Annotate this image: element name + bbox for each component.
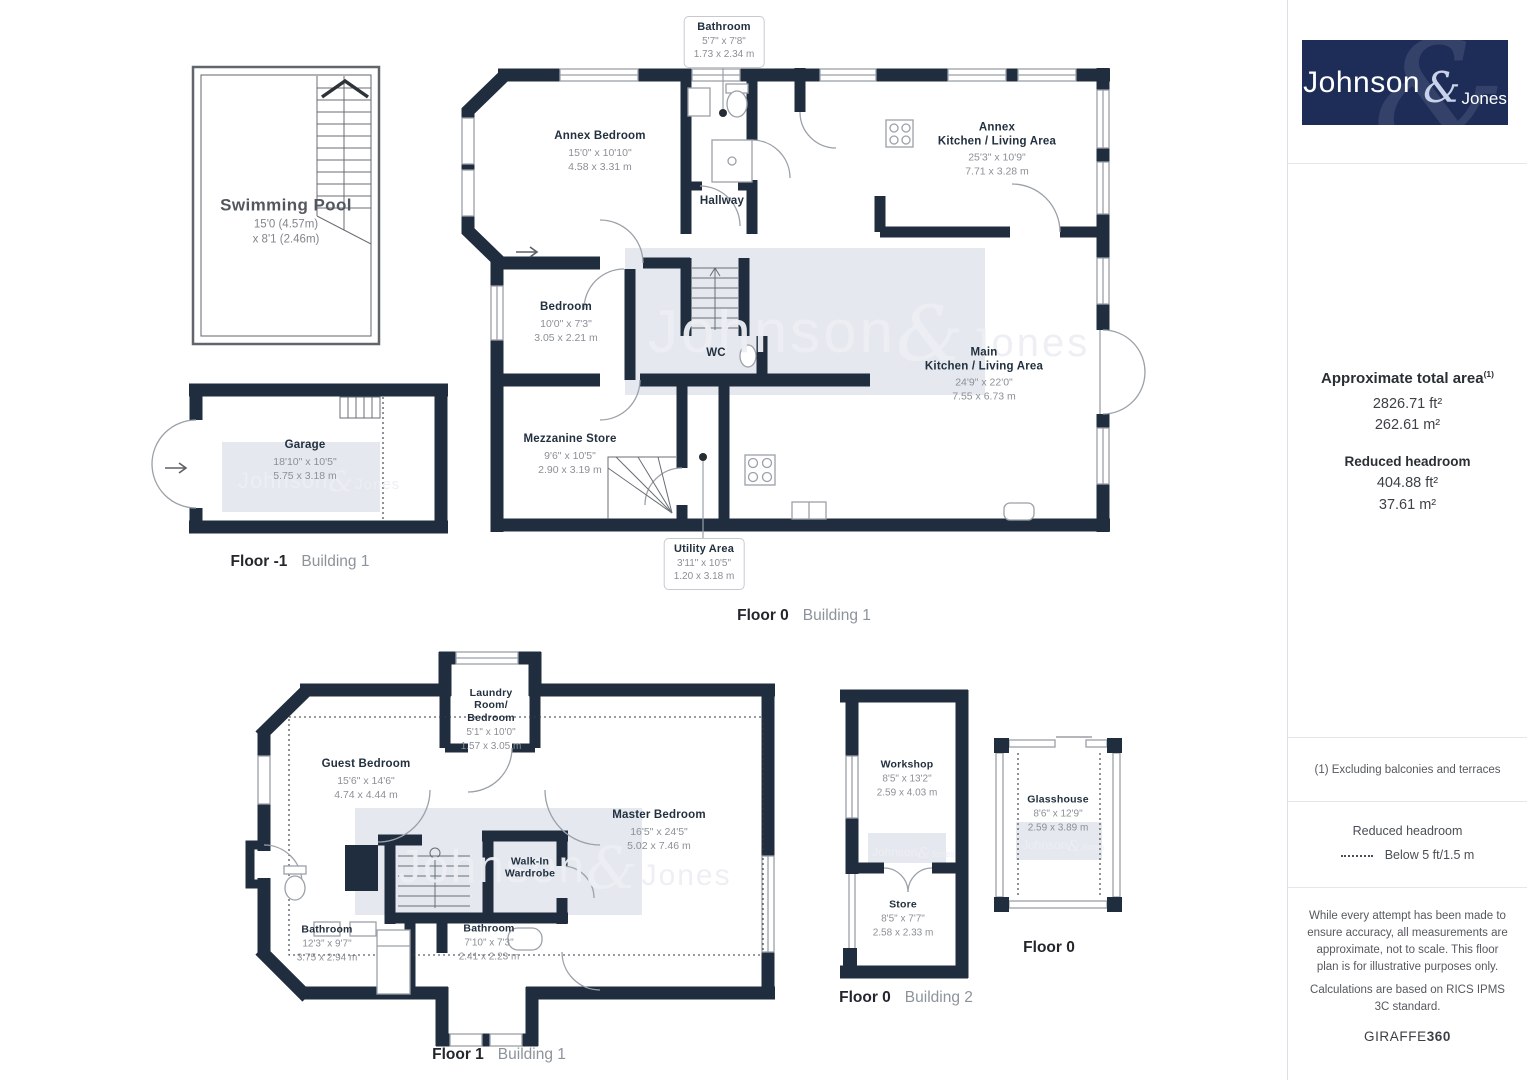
floor-label-floor0-glasshouse: Floor 0 xyxy=(1023,939,1089,957)
logo-primary-text: Johnson xyxy=(1303,66,1420,100)
room-dims: 7'10" x 7'3" 2.41 x 2.23 m xyxy=(459,937,520,964)
room-name: Annex Kitchen / Living Area xyxy=(938,121,1056,148)
room-label-workshop: Workshop 8'5" x 13'2" 2.59 x 4.03 m xyxy=(877,758,938,799)
room-label-bathroom-1: Bathroom 12'3" x 9'7" 3.75 x 2.94 m xyxy=(297,923,358,964)
room-label-annex-kitchen: Annex Kitchen / Living Area 25'3" x 10'9… xyxy=(938,121,1056,178)
room-name: Bedroom xyxy=(534,301,598,315)
room-dims: 10'0" x 7'3" 3.05 x 2.21 m xyxy=(534,317,598,345)
room-name: Workshop xyxy=(877,758,938,770)
mezzanine-stairs-icon xyxy=(608,457,676,519)
room-label-wc: WC xyxy=(706,347,726,361)
legend-label: Below 5 ft/1.5 m xyxy=(1385,848,1475,862)
room-name: Bathroom xyxy=(694,21,755,34)
room-dims: 25'3" x 10'9" 7.71 x 3.28 m xyxy=(938,151,1056,179)
room-dims: 15'6" x 14'6" 4.74 x 4.44 m xyxy=(322,774,411,802)
room-label-master-bedroom: Master Bedroom 16'5" x 24'5" 5.02 x 7.46… xyxy=(612,809,706,853)
room-dims: 8'5" x 7'7" 2.58 x 2.33 m xyxy=(873,913,934,940)
logo-ampersand-icon: & xyxy=(1423,63,1460,112)
disclaimer-text-1: While every attempt has been made to ens… xyxy=(1307,908,1509,976)
legend-title: Reduced headroom xyxy=(1288,824,1527,838)
room-dims: 5'1" x 10'0" 1.57 x 3.05 m xyxy=(461,726,522,753)
disclaimer-block: While every attempt has been made to ens… xyxy=(1288,908,1527,976)
room-dims: 8'6" x 12'9" 2.59 x 3.89 m xyxy=(1027,808,1089,835)
reduced-headroom-m: 37.61 m² xyxy=(1288,497,1527,513)
room-name: Walk-In Wardrobe xyxy=(505,856,555,881)
giraffe360-logo: GIRAFFE360 xyxy=(1288,1029,1527,1044)
room-dims: 12'3" x 9'7" 3.75 x 2.94 m xyxy=(297,938,358,965)
up-arrow-icon xyxy=(322,81,368,97)
room-label-store: Store 8'5" x 7'7" 2.58 x 2.33 m xyxy=(873,898,934,939)
footnote-marker: (1) xyxy=(1484,369,1494,379)
room-label-annex-bedroom: Annex Bedroom 15'0" x 10'10" 4.58 x 3.31… xyxy=(554,130,645,174)
room-dims: 15'0" x 10'10" 4.58 x 3.31 m xyxy=(554,146,645,174)
room-label-guest-bedroom: Guest Bedroom 15'6" x 14'6" 4.74 x 4.44 … xyxy=(322,758,411,802)
room-label-swimming-pool: Swimming Pool 15'0 (4.57m) x 8'1 (2.46m) xyxy=(220,196,352,249)
floorplan-page: Johnson&Jones Johnson&Jones Johnson&Jone… xyxy=(0,0,1527,1080)
callout-bathroom-annex: Bathroom 5'7" x 7'8" 1.73 x 2.34 m xyxy=(684,16,765,68)
disclaimer-text-2: Calculations are based on RICS IPMS 3C s… xyxy=(1307,982,1509,1016)
room-label-main-kitchen: Main Kitchen / Living Area 24'9" x 22'0"… xyxy=(925,346,1043,403)
dotted-line-icon xyxy=(1341,855,1373,857)
room-dims: 3'11" x 10'5" 1.20 x 3.18 m xyxy=(674,557,735,584)
total-area-ft: 2826.71 ft² xyxy=(1288,396,1527,412)
total-area-m: 262.61 m² xyxy=(1288,417,1527,433)
room-label-bathroom-2: Bathroom 7'10" x 7'3" 2.41 x 2.23 m xyxy=(459,922,520,963)
room-name: Guest Bedroom xyxy=(322,758,411,772)
room-name: Main Kitchen / Living Area xyxy=(925,346,1043,373)
sidebar-divider xyxy=(1288,163,1527,164)
garage-door-arcs xyxy=(152,420,196,508)
legend-row: Below 5 ft/1.5 m xyxy=(1288,848,1527,862)
room-label-bedroom: Bedroom 10'0" x 7'3" 3.05 x 2.21 m xyxy=(534,301,598,345)
entrance-arrow-icon xyxy=(516,247,537,257)
floor-label-floor0-building2: Floor 0Building 2 xyxy=(839,989,973,1007)
johnson-jones-logo: & Johnson & Jones xyxy=(1302,40,1508,125)
room-name: Bathroom xyxy=(297,923,358,935)
disclaimer-block-2: Calculations are based on RICS IPMS 3C s… xyxy=(1288,982,1527,1016)
floor-label-floor1-building1: Floor 1Building 1 xyxy=(432,1046,566,1064)
reduced-headroom-ft: 404.88 ft² xyxy=(1288,475,1527,491)
reduced-headroom-title: Reduced headroom xyxy=(1288,454,1527,469)
total-area-title: Approximate total area(1) xyxy=(1288,369,1527,387)
room-name: Bathroom xyxy=(459,922,520,934)
logo-secondary-text: Jones xyxy=(1461,89,1506,109)
room-dims: 9'6" x 10'5" 2.90 x 3.19 m xyxy=(523,449,616,477)
room-label-walk-in-wardrobe: Walk-In Wardrobe xyxy=(505,856,555,881)
room-dims: 16'5" x 24'5" 5.02 x 7.46 m xyxy=(612,825,706,853)
room-name: Store xyxy=(873,898,934,910)
room-name: Hallway xyxy=(700,195,744,209)
garage-stairs-icon xyxy=(340,397,380,418)
floor-label-minus1-building1: Floor -1Building 1 xyxy=(231,553,370,571)
room-dims: 8'5" x 13'2" 2.59 x 4.03 m xyxy=(877,773,938,800)
room-label-hallway: Hallway xyxy=(700,195,744,209)
room-name: Annex Bedroom xyxy=(554,130,645,144)
room-label-garage: Garage 18'10" x 10'5" 5.75 x 3.18 m xyxy=(273,439,337,483)
sidebar-divider xyxy=(1288,801,1527,802)
sidebar-divider xyxy=(1288,737,1527,738)
entrance-arrow-icon xyxy=(165,463,186,473)
room-name: Swimming Pool xyxy=(220,196,352,216)
room-name: Glasshouse xyxy=(1027,793,1089,805)
callout-utility-area: Utility Area 3'11" x 10'5" 1.20 x 3.18 m xyxy=(664,538,745,590)
floor-label-floor0-building1: Floor 0Building 1 xyxy=(737,607,871,625)
room-dims: 24'9" x 22'0" 7.55 x 6.73 m xyxy=(925,376,1043,404)
room-name: WC xyxy=(706,347,726,361)
info-sidebar: & Johnson & Jones Approximate total area… xyxy=(1287,0,1527,1080)
room-name: Laundry Room/ Bedroom xyxy=(461,687,522,724)
room-label-laundry-room: Laundry Room/ Bedroom 5'1" x 10'0" 1.57 … xyxy=(461,687,522,753)
room-name: Mezzanine Store xyxy=(523,433,616,447)
room-dims: 18'10" x 10'5" 5.75 x 3.18 m xyxy=(273,455,337,483)
sidebar-divider xyxy=(1288,887,1527,888)
area-footnote: (1) Excluding balconies and terraces xyxy=(1288,764,1527,776)
building2-doors xyxy=(884,868,932,892)
room-dims: 15'0 (4.57m) x 8'1 (2.46m) xyxy=(220,218,352,249)
room-label-mezzanine-store: Mezzanine Store 9'6" x 10'5" 2.90 x 3.19… xyxy=(523,433,616,477)
room-name: Utility Area xyxy=(674,543,735,556)
room-label-glasshouse: Glasshouse 8'6" x 12'9" 2.59 x 3.89 m xyxy=(1027,793,1089,834)
room-name: Garage xyxy=(273,439,337,453)
room-name: Master Bedroom xyxy=(612,809,706,823)
room-dims: 5'7" x 7'8" 1.73 x 2.34 m xyxy=(694,35,755,62)
